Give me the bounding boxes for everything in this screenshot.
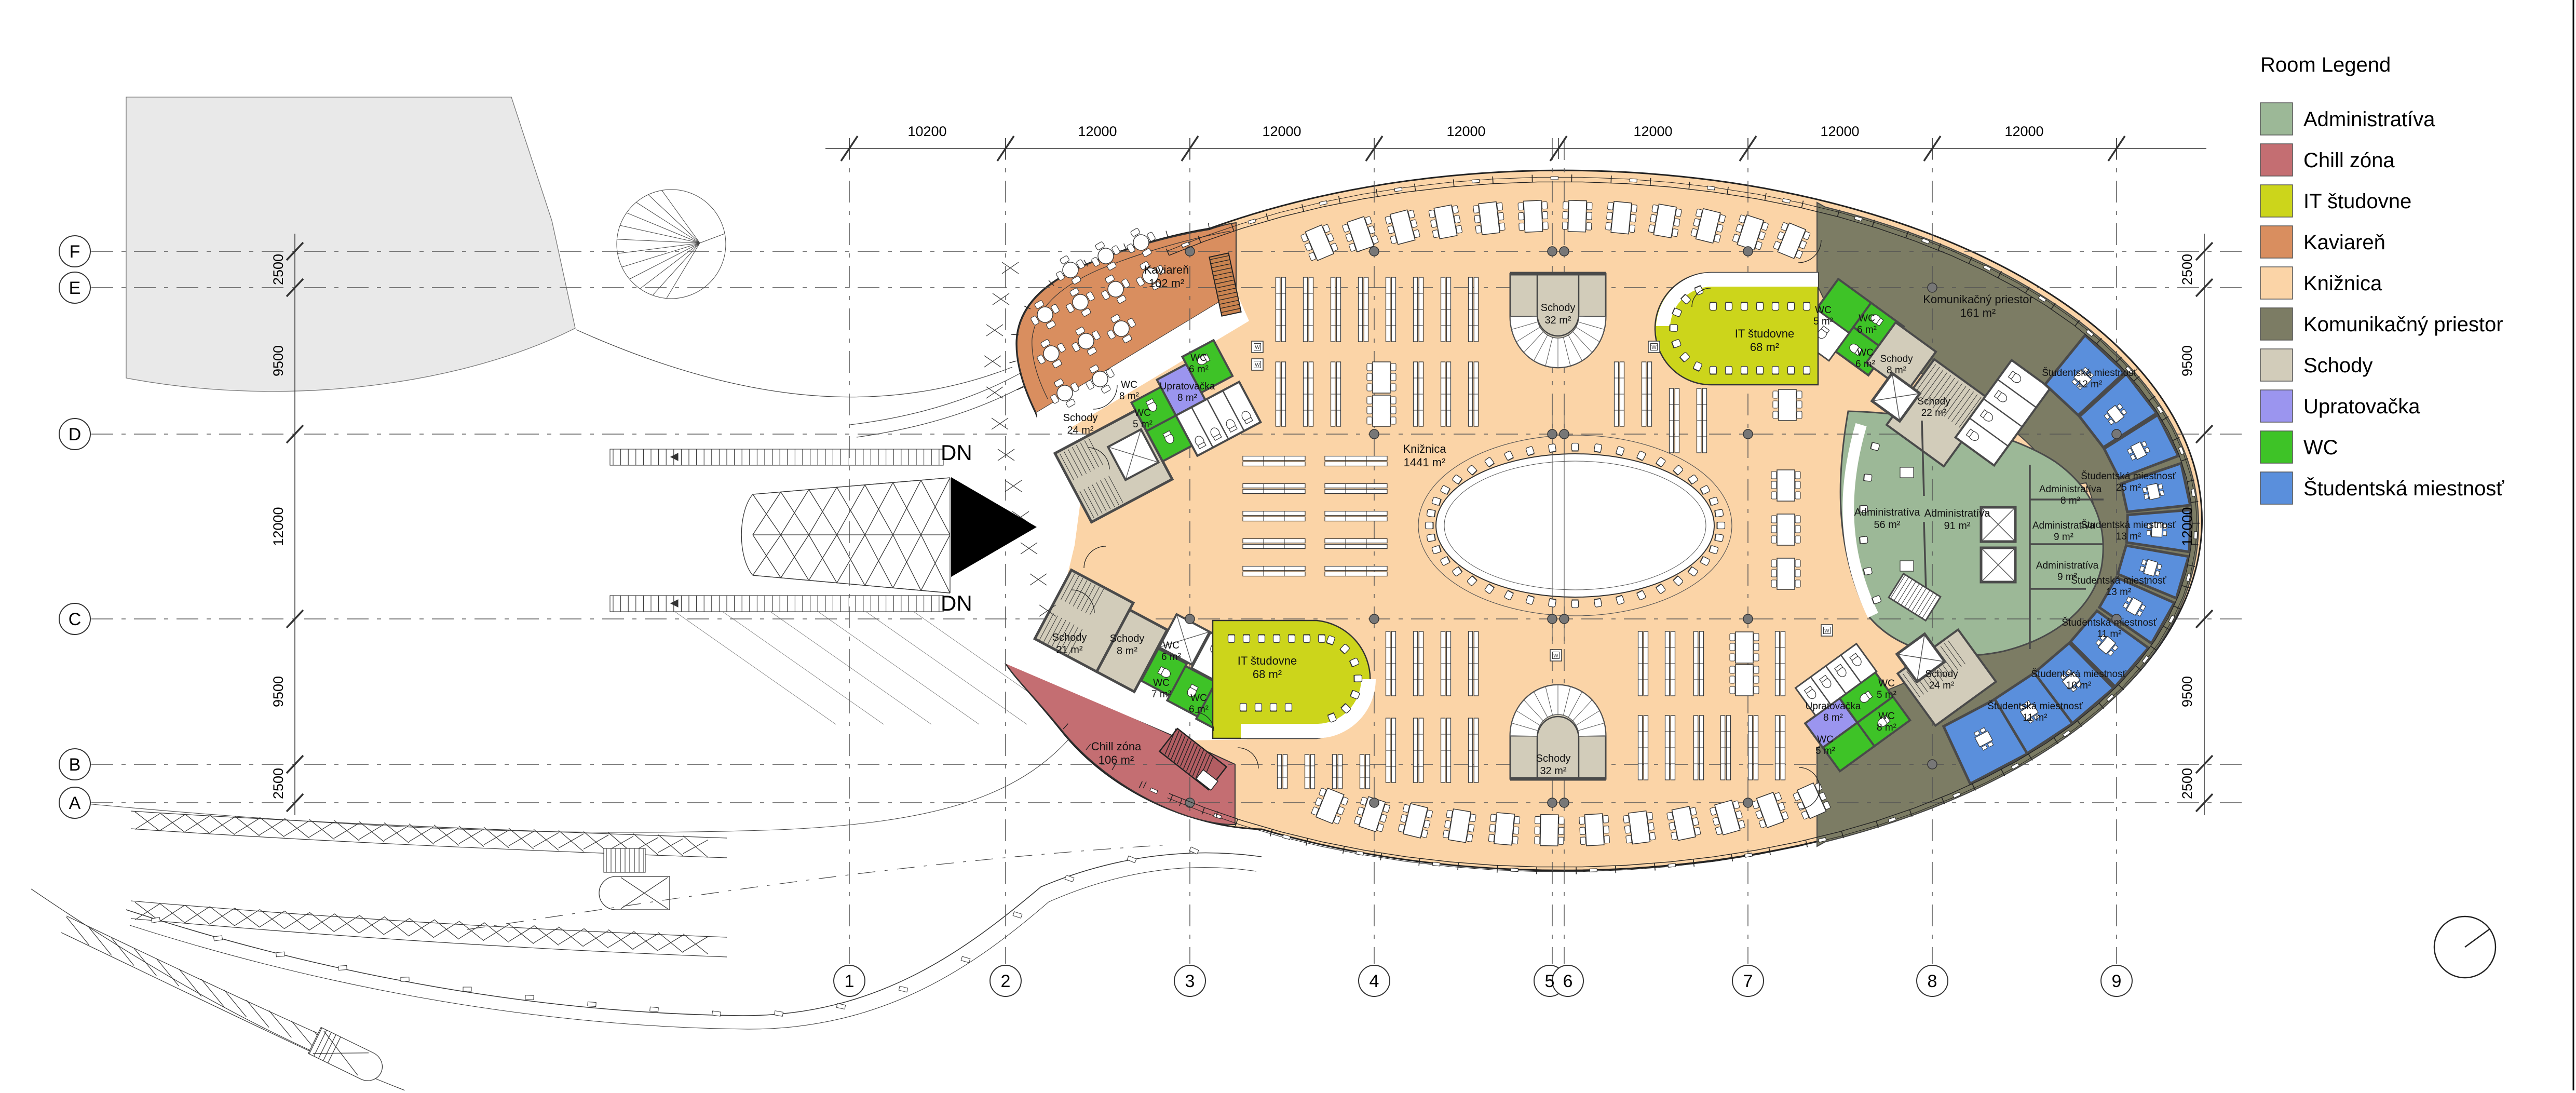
svg-text:9500: 9500 xyxy=(2179,345,2195,376)
svg-text:2: 2 xyxy=(1001,971,1011,991)
svg-text:Schody: Schody xyxy=(2303,354,2372,377)
svg-text:2500: 2500 xyxy=(2179,254,2195,285)
svg-text:12000: 12000 xyxy=(1078,124,1117,139)
svg-text:9500: 9500 xyxy=(2179,676,2195,707)
svg-text:WC5 m²: WC5 m² xyxy=(1133,408,1153,430)
svg-text:12000: 12000 xyxy=(1262,124,1301,139)
svg-text:8: 8 xyxy=(1928,971,1937,991)
svg-text:WC5 m²: WC5 m² xyxy=(1813,305,1833,327)
svg-text:12000: 12000 xyxy=(1446,124,1485,139)
svg-text:B: B xyxy=(69,755,81,775)
svg-text:WC6 m²: WC6 m² xyxy=(1189,353,1209,375)
svg-text:7: 7 xyxy=(1743,971,1753,991)
svg-text:F: F xyxy=(70,242,80,262)
svg-text:1: 1 xyxy=(845,971,855,991)
svg-text:WC8 m²: WC8 m² xyxy=(1877,711,1896,733)
svg-text:3: 3 xyxy=(1185,971,1195,991)
svg-text:IT študovne: IT študovne xyxy=(2303,190,2411,213)
svg-text:DN: DN xyxy=(941,591,972,615)
svg-text:12000: 12000 xyxy=(1820,124,1859,139)
svg-text:Chill zóna: Chill zóna xyxy=(2303,149,2395,172)
svg-text:6: 6 xyxy=(1563,971,1573,991)
svg-text:Kaviareň102 m²: Kaviareň102 m² xyxy=(1144,263,1189,290)
svg-text:Upratovačka: Upratovačka xyxy=(2303,395,2420,418)
svg-text:E: E xyxy=(69,278,81,298)
svg-text:D: D xyxy=(69,425,82,444)
svg-text:Room Legend: Room Legend xyxy=(2260,53,2391,76)
svg-text:2500: 2500 xyxy=(270,768,286,799)
svg-text:WC7 m²: WC7 m² xyxy=(1151,678,1171,700)
svg-text:Knižnica: Knižnica xyxy=(2303,272,2382,295)
svg-text:WC5 m²: WC5 m² xyxy=(1815,734,1835,757)
svg-text:12000: 12000 xyxy=(1633,124,1672,139)
svg-text:WC8 m²: WC8 m² xyxy=(1119,380,1139,402)
svg-text:10200: 10200 xyxy=(907,124,946,139)
svg-text:12000: 12000 xyxy=(2004,124,2043,139)
svg-text:Kaviareň: Kaviareň xyxy=(2303,231,2385,254)
svg-text:WC5 m²: WC5 m² xyxy=(1877,678,1896,700)
svg-text:DN: DN xyxy=(941,440,972,465)
svg-text:4: 4 xyxy=(1370,971,1379,991)
svg-text:2500: 2500 xyxy=(2179,768,2195,799)
svg-text:2500: 2500 xyxy=(270,254,286,285)
svg-text:WC6 m²: WC6 m² xyxy=(1161,640,1181,663)
svg-text:WC: WC xyxy=(2303,436,2338,459)
svg-text:5: 5 xyxy=(1545,971,1555,991)
svg-text:Komunikačný priestor: Komunikačný priestor xyxy=(2303,313,2503,336)
svg-text:Knižnica1441 m²: Knižnica1441 m² xyxy=(1403,442,1446,469)
svg-text:WC6 m²: WC6 m² xyxy=(1855,347,1875,370)
svg-text:Študentská miestnosť: Študentská miestnosť xyxy=(2303,477,2504,500)
svg-text:12000: 12000 xyxy=(270,507,286,546)
svg-text:Administratíva: Administratíva xyxy=(2303,108,2435,131)
svg-text:Schody24 m²: Schody24 m² xyxy=(1925,669,1958,691)
svg-text:9500: 9500 xyxy=(270,345,286,376)
svg-text:WC6 m²: WC6 m² xyxy=(1857,313,1877,335)
svg-text:Schody22 m²: Schody22 m² xyxy=(1917,396,1950,419)
svg-text:9: 9 xyxy=(2112,971,2122,991)
svg-text:12000: 12000 xyxy=(2179,507,2195,546)
svg-text:WC6 m²: WC6 m² xyxy=(1189,693,1209,715)
svg-text:9500: 9500 xyxy=(270,676,286,707)
svg-text:C: C xyxy=(69,610,82,629)
svg-text:A: A xyxy=(69,793,81,813)
